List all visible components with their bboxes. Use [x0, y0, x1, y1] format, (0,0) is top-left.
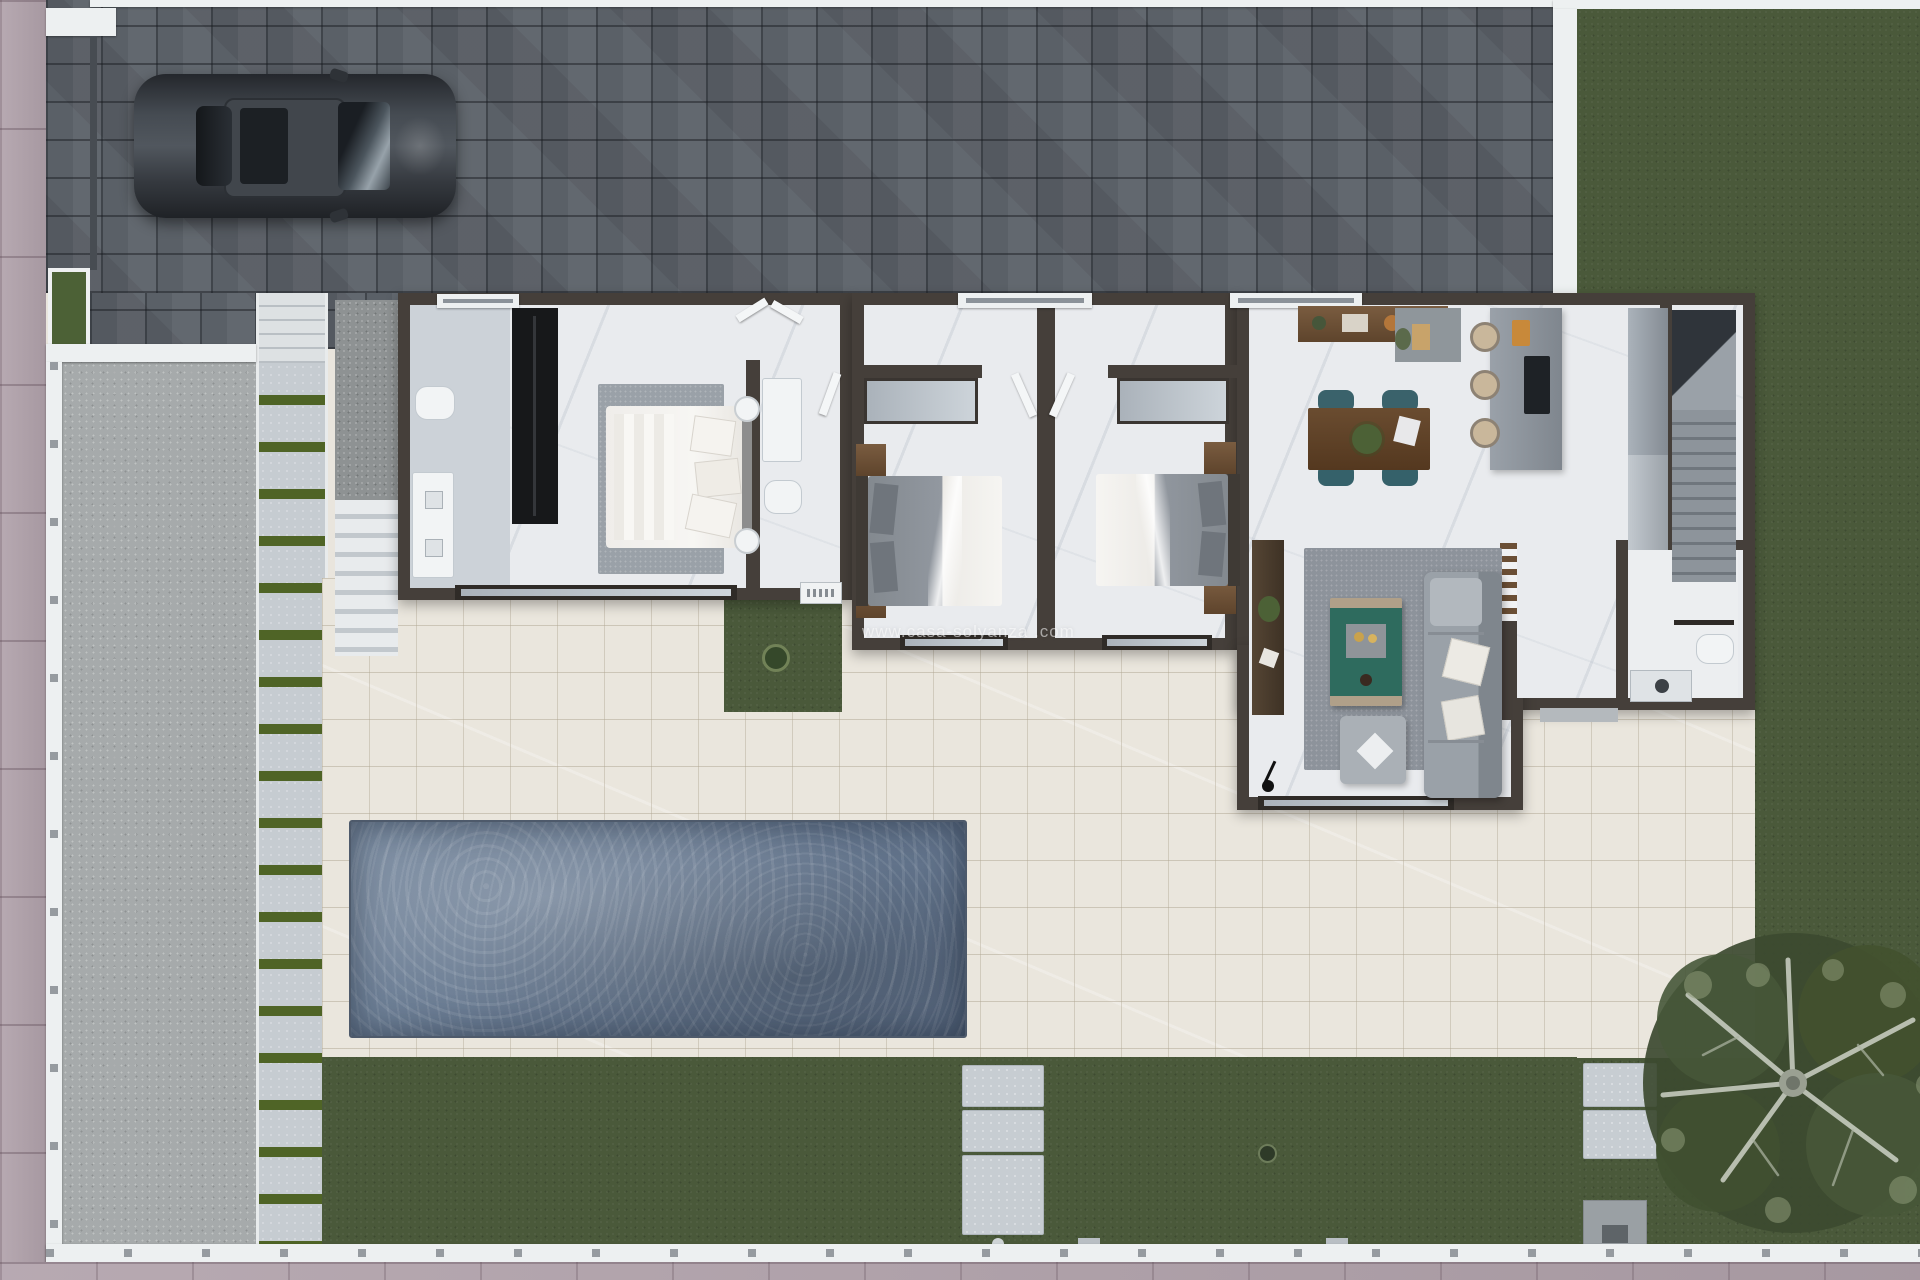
- gravel-side-yard: [62, 362, 256, 1247]
- nightstand: [1204, 582, 1236, 614]
- bedroom2-window: [864, 378, 978, 424]
- bed3-headboard: [1228, 474, 1240, 586]
- door-mat: [1412, 324, 1430, 350]
- table-magazine: [1393, 416, 1421, 447]
- window-slit: [966, 298, 1084, 303]
- pillow: [1442, 638, 1490, 686]
- sofa-back-wall: [1500, 620, 1517, 720]
- stepping-stone: [962, 1155, 1044, 1235]
- bedroom3-front-wall: [1108, 365, 1237, 378]
- duvet-folds: [614, 414, 674, 540]
- tray-bowl: [1368, 634, 1377, 643]
- towel-rail: [1674, 620, 1734, 625]
- pillow: [685, 494, 737, 539]
- wc-toilet: [1696, 634, 1734, 664]
- headboard: [742, 406, 752, 548]
- olive-tree: [1628, 925, 1920, 1245]
- wardrobe-seam: [533, 316, 536, 516]
- car-hood-highlight: [394, 116, 446, 176]
- sideboard-plant: [1258, 596, 1280, 622]
- courtyard-bush: [762, 644, 790, 672]
- slat-screen: [1500, 543, 1517, 621]
- master-slider-frame: [455, 585, 737, 600]
- car-windshield: [338, 102, 390, 190]
- sofa: [1424, 572, 1502, 798]
- lawn-bottom: [322, 1057, 1577, 1247]
- window-slit: [443, 299, 513, 303]
- kitchen-island: [1490, 308, 1562, 470]
- sink: [425, 491, 443, 509]
- boundary-wall-top: [90, 0, 1553, 7]
- nightstand: [1204, 442, 1236, 474]
- pillow: [690, 415, 737, 456]
- tray-bowl: [1354, 632, 1364, 642]
- cooktop: [1524, 356, 1550, 414]
- bed3: [1096, 474, 1228, 586]
- fence-posts-bottom: [46, 1249, 1920, 1257]
- ac-unit: [800, 582, 842, 604]
- lawn-drain: [1258, 1144, 1277, 1163]
- master-bed: [606, 406, 752, 548]
- bedside-lamp: [734, 528, 760, 554]
- sideboard-books: [1342, 314, 1368, 332]
- table-tray: [1346, 624, 1386, 658]
- tv-sideboard: [1252, 540, 1284, 715]
- pillow: [694, 458, 742, 498]
- stepping-stone: [962, 1110, 1044, 1152]
- sideboard-plant: [1312, 316, 1326, 330]
- bar-stool: [1470, 418, 1500, 448]
- stairs-landing: [1672, 310, 1736, 410]
- side-gravel-bed: [335, 300, 398, 500]
- pillow: [869, 483, 898, 535]
- wall-driveway-lawn: [1553, 9, 1577, 293]
- sofa-seam: [1428, 632, 1484, 635]
- sideboard-decor: [1259, 648, 1280, 669]
- walkway-steps: [256, 293, 328, 363]
- wc-vanity: [1630, 670, 1692, 702]
- bed2: [868, 476, 1002, 606]
- bedroom3-window: [1117, 378, 1229, 424]
- pillow: [870, 541, 898, 593]
- terrace-step: [1540, 708, 1618, 722]
- garden-plinth-item: [1602, 1225, 1628, 1243]
- car-rear-window: [196, 106, 232, 186]
- boundary-wall-top-right: [1553, 0, 1920, 9]
- window-slit: [1238, 298, 1354, 303]
- wall-band-left: [46, 344, 256, 362]
- pillow: [1198, 531, 1226, 577]
- aerial-floor-plan-render: www.casa-solyanza .com: [0, 0, 1920, 1280]
- fence-posts-left: [50, 362, 58, 1262]
- sink: [425, 539, 443, 557]
- sofa-seam: [1428, 740, 1484, 743]
- bed3-throw: [1136, 474, 1170, 586]
- exterior-stairs: [335, 500, 398, 656]
- coffee-table: [1330, 598, 1402, 706]
- bedroom2-front-wall: [852, 365, 982, 378]
- fence-line: [90, 36, 97, 270]
- bed2-headboard: [856, 476, 868, 606]
- toilet: [415, 386, 455, 420]
- clerestory-window: [437, 294, 519, 308]
- kitchen-counter: [1628, 455, 1668, 550]
- bar-stool: [1470, 370, 1500, 400]
- ensuite-toilet: [764, 480, 802, 514]
- watermark: www.casa-solyanza .com: [862, 622, 1075, 642]
- slider-glass: [461, 589, 731, 596]
- bedside-lamp: [734, 396, 760, 422]
- bedroom3-slider: [1102, 635, 1212, 650]
- ac-vent: [807, 589, 835, 597]
- staircase: [1672, 410, 1736, 582]
- clerestory-window: [958, 293, 1092, 308]
- sidewalk-left: [0, 0, 46, 1280]
- table-decor: [1360, 674, 1372, 686]
- pillow: [1441, 695, 1485, 741]
- table-plant: [1352, 424, 1382, 454]
- wc-left-wall: [1616, 548, 1628, 710]
- car-sunroof: [240, 108, 288, 184]
- wall-between-bedrooms: [1037, 305, 1055, 638]
- sidewalk-bottom: [0, 1262, 1920, 1280]
- boundary-wall-bottom: [46, 1244, 1920, 1262]
- gate-wall: [46, 8, 116, 36]
- bar-stool: [1470, 322, 1500, 352]
- bed2-throw: [928, 476, 962, 606]
- slider-glass: [1107, 639, 1207, 646]
- slider-glass: [1264, 800, 1448, 806]
- nightstand: [856, 444, 886, 476]
- entry-landing: [1395, 308, 1461, 362]
- walkway-grass-stripes: [256, 363, 328, 1247]
- cutting-board: [1512, 320, 1530, 346]
- gate-planting-strip: [48, 268, 90, 354]
- swimming-pool: [349, 820, 967, 1038]
- double-vanity: [412, 472, 454, 578]
- pillow: [1198, 481, 1226, 527]
- entry-plant: [1395, 328, 1411, 350]
- ottoman: [1340, 716, 1406, 784]
- ottoman-cloth: [1357, 733, 1394, 770]
- dining-table: [1308, 408, 1430, 470]
- boundary-wall-left: [46, 362, 62, 1262]
- stepping-stone: [962, 1065, 1044, 1107]
- kitchen-tall-units: [1628, 308, 1668, 455]
- courtyard-grass: [724, 600, 842, 712]
- ensuite-vanity: [762, 378, 802, 462]
- living-slider: [1258, 796, 1454, 810]
- wardrobe: [512, 308, 558, 524]
- parked-car: [132, 72, 458, 220]
- sofa-chaise-cushion: [1430, 578, 1482, 626]
- wc-sink: [1655, 679, 1669, 693]
